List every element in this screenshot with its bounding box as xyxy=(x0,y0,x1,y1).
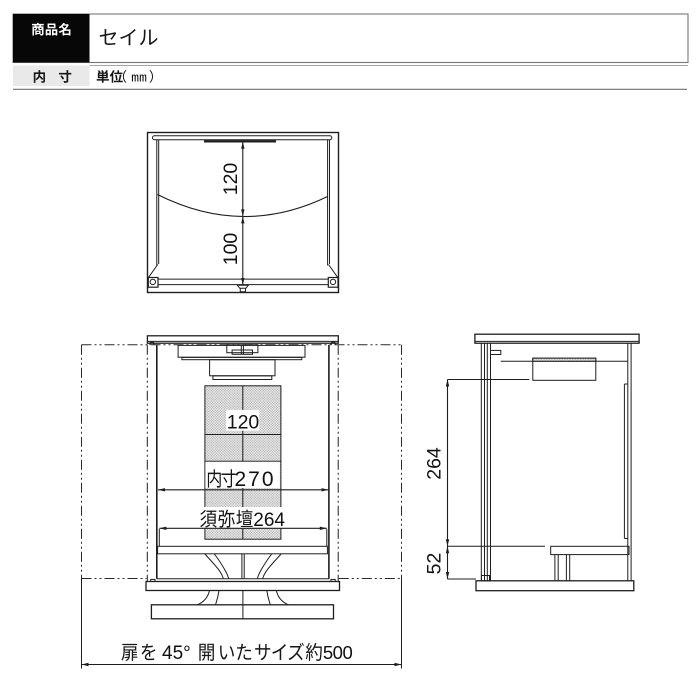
svg-text:270: 270 xyxy=(235,468,276,491)
svg-text:52: 52 xyxy=(424,553,446,575)
svg-text:100: 100 xyxy=(220,233,242,266)
svg-text:500: 500 xyxy=(323,642,353,663)
svg-text:45°: 45° xyxy=(162,643,191,664)
svg-text:mm: mm xyxy=(131,70,147,85)
svg-text:264: 264 xyxy=(424,447,446,480)
svg-text:120: 120 xyxy=(227,411,260,433)
svg-text:120: 120 xyxy=(220,163,242,196)
